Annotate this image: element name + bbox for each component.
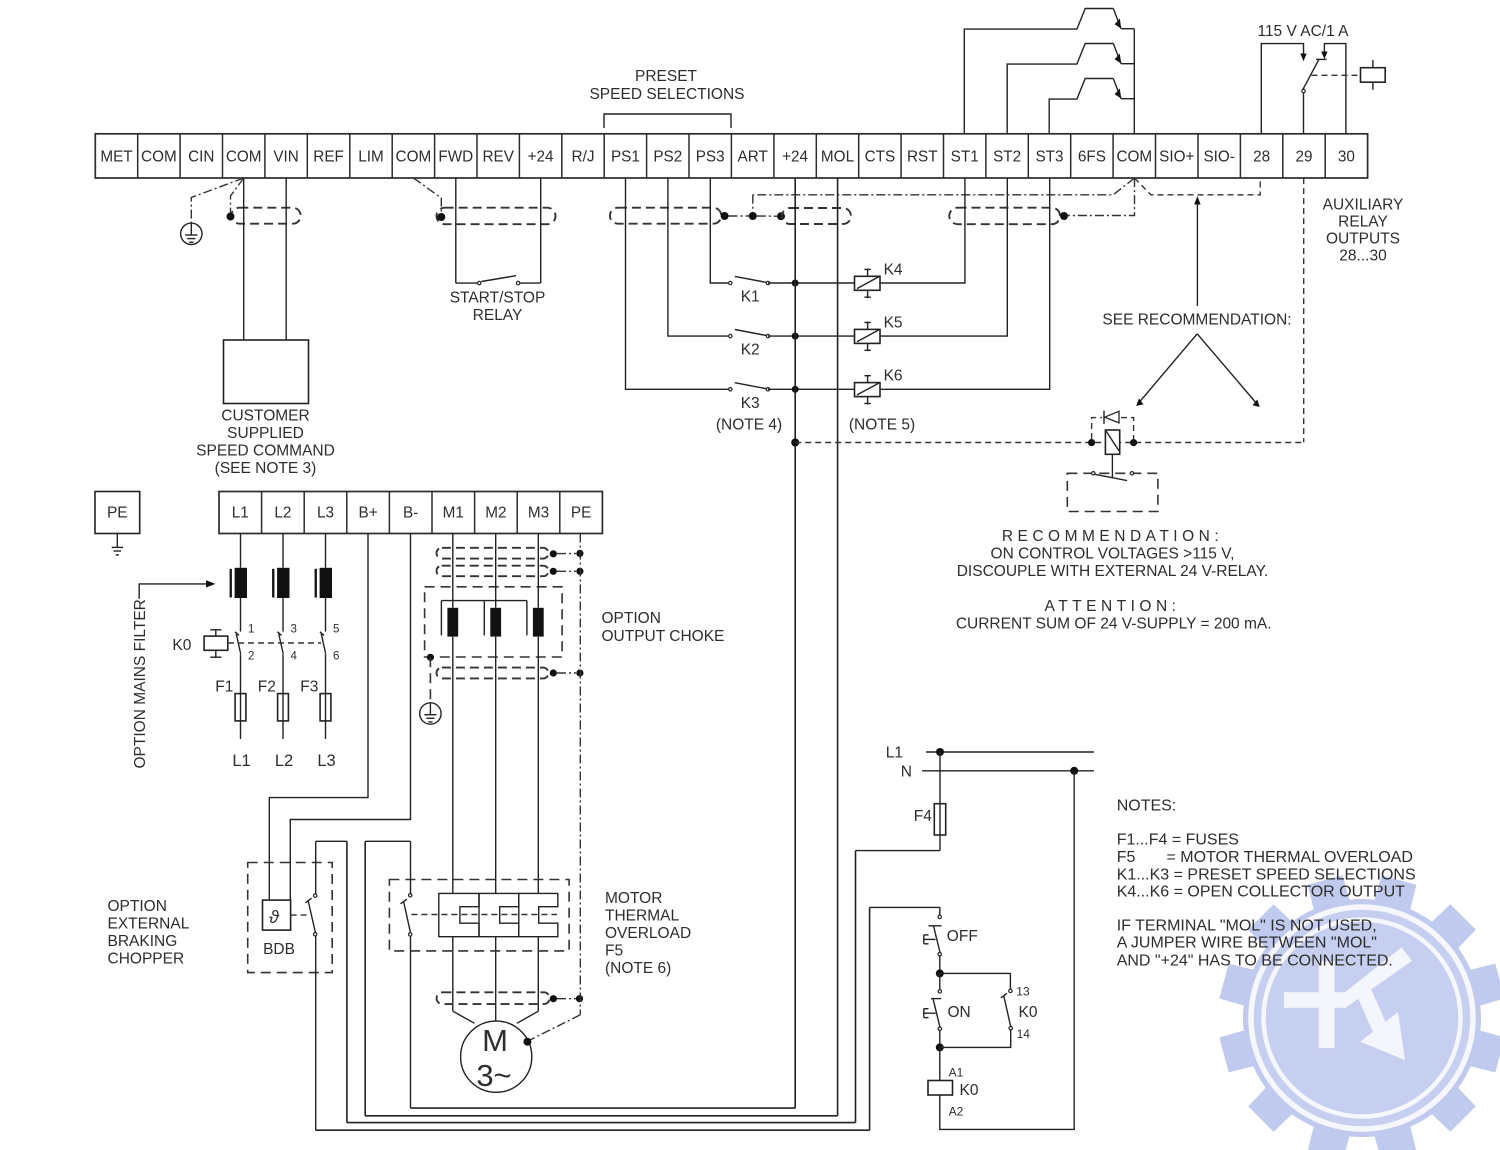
- svg-text:COM: COM: [141, 149, 177, 166]
- svg-text:K6: K6: [884, 368, 903, 385]
- svg-text:ATTENTION:: ATTENTION:: [1045, 598, 1181, 615]
- svg-text:A JUMPER WIRE BETWEEN "MOL": A JUMPER WIRE BETWEEN "MOL": [1117, 935, 1377, 952]
- svg-text:L1: L1: [886, 745, 903, 762]
- svg-text:OVERLOAD: OVERLOAD: [605, 925, 691, 942]
- svg-text:R/J: R/J: [572, 149, 595, 166]
- svg-text:LIM: LIM: [358, 149, 384, 166]
- svg-text:B-: B-: [403, 505, 418, 522]
- svg-text:K4...K6 = OPEN COLLECTOR OUTPU: K4...K6 = OPEN COLLECTOR OUTPUT: [1117, 884, 1405, 901]
- svg-text:K1...K3 = PRESET SPEED SELECTI: K1...K3 = PRESET SPEED SELECTIONS: [1117, 866, 1416, 883]
- svg-text:3: 3: [291, 624, 297, 636]
- svg-text:PS2: PS2: [653, 149, 682, 166]
- svg-text:F5 = MOTOR THERMAL OVERL: F5 = MOTOR THERMAL OVERLOAD: [1117, 849, 1413, 866]
- svg-text:A1: A1: [949, 1066, 964, 1080]
- svg-text:AUXILIARY: AUXILIARY: [1323, 197, 1404, 214]
- svg-text:K4: K4: [884, 261, 903, 278]
- svg-text:115 V AC/1 A: 115 V AC/1 A: [1257, 23, 1349, 40]
- svg-text:OUTPUT CHOKE: OUTPUT CHOKE: [602, 628, 725, 645]
- svg-text:F2: F2: [258, 679, 276, 696]
- svg-text:ST2: ST2: [993, 149, 1021, 166]
- svg-text:3~: 3~: [476, 1058, 511, 1093]
- svg-text:+24: +24: [528, 149, 554, 166]
- svg-text:REF: REF: [313, 149, 344, 166]
- svg-text:L2: L2: [274, 505, 291, 522]
- svg-text:F1: F1: [215, 679, 233, 696]
- svg-text:RST: RST: [907, 149, 938, 166]
- svg-text:L1: L1: [232, 505, 249, 522]
- svg-text:SPEED COMMAND: SPEED COMMAND: [196, 443, 335, 460]
- svg-text:IF TERMINAL "MOL" IS NOT USED,: IF TERMINAL "MOL" IS NOT USED,: [1117, 918, 1377, 935]
- svg-text:COM: COM: [226, 149, 262, 166]
- svg-text:28...30: 28...30: [1339, 248, 1387, 265]
- svg-text:B+: B+: [359, 505, 378, 522]
- svg-text:EXTERNAL: EXTERNAL: [108, 916, 190, 933]
- svg-text:COM: COM: [396, 149, 432, 166]
- svg-text:K1: K1: [741, 289, 760, 306]
- svg-text:K5: K5: [884, 314, 903, 331]
- svg-text:5: 5: [333, 624, 339, 636]
- svg-text:ART: ART: [738, 149, 768, 166]
- svg-text:SEE RECOMMENDATION:: SEE RECOMMENDATION:: [1102, 312, 1291, 329]
- svg-text:PE: PE: [107, 505, 128, 522]
- svg-text:PS1: PS1: [611, 149, 640, 166]
- svg-text:1: 1: [248, 624, 254, 636]
- svg-text:(NOTE 4): (NOTE 4): [716, 417, 782, 434]
- svg-text:CURRENT SUM OF 24 V-SUPPLY = 2: CURRENT SUM OF 24 V-SUPPLY = 200 mA.: [956, 616, 1272, 633]
- svg-text:N: N: [901, 764, 912, 781]
- svg-text:CUSTOMER: CUSTOMER: [221, 408, 309, 425]
- svg-text:(SEE NOTE 3): (SEE NOTE 3): [215, 460, 317, 477]
- svg-text:START/STOP: START/STOP: [450, 290, 546, 307]
- svg-text:A2: A2: [949, 1105, 964, 1119]
- svg-text:MOL: MOL: [821, 149, 854, 166]
- svg-text:MOTOR: MOTOR: [605, 890, 662, 907]
- svg-text:13: 13: [1016, 985, 1030, 999]
- svg-text:CTS: CTS: [865, 149, 896, 166]
- svg-text:ON: ON: [948, 1004, 971, 1021]
- svg-text:29: 29: [1295, 149, 1312, 166]
- svg-text:14: 14: [1017, 1027, 1031, 1041]
- svg-text:6FS: 6FS: [1078, 149, 1106, 166]
- svg-text:(NOTE 6): (NOTE 6): [605, 960, 671, 977]
- svg-text:F3: F3: [300, 679, 318, 696]
- svg-text:ON CONTROL VOLTAGES >115 V,: ON CONTROL VOLTAGES >115 V,: [991, 546, 1235, 563]
- svg-text:BRAKING: BRAKING: [108, 933, 178, 950]
- svg-text:M3: M3: [528, 505, 549, 522]
- svg-text:SUPPLIED: SUPPLIED: [227, 425, 304, 442]
- svg-text:K3: K3: [741, 395, 760, 412]
- svg-text:L3: L3: [317, 752, 335, 770]
- svg-text:28: 28: [1253, 149, 1270, 166]
- svg-text:SIO-: SIO-: [1203, 149, 1234, 166]
- svg-text:SIO+: SIO+: [1159, 149, 1194, 166]
- svg-text:6: 6: [333, 651, 339, 663]
- svg-text:PS3: PS3: [696, 149, 725, 166]
- svg-text:AND "+24" HAS TO BE CONNECTED.: AND "+24" HAS TO BE CONNECTED.: [1117, 953, 1393, 970]
- svg-text:OFF: OFF: [947, 928, 978, 945]
- svg-text:REV: REV: [482, 149, 514, 166]
- svg-text:OUTPUTS: OUTPUTS: [1326, 231, 1400, 248]
- svg-text:OPTION: OPTION: [602, 610, 661, 627]
- svg-text:K0: K0: [172, 637, 191, 654]
- svg-text:L3: L3: [317, 505, 334, 522]
- svg-text:CHOPPER: CHOPPER: [108, 951, 185, 968]
- svg-text:30: 30: [1338, 149, 1355, 166]
- svg-text:OPTION MAINS FILTER: OPTION MAINS FILTER: [132, 599, 149, 768]
- svg-text:DISCOUPLE WITH EXTERNAL 24 V-R: DISCOUPLE WITH EXTERNAL 24 V-RELAY.: [957, 563, 1269, 580]
- svg-text:4: 4: [291, 651, 298, 663]
- svg-text:L2: L2: [275, 752, 293, 770]
- svg-text:PE: PE: [571, 505, 591, 522]
- svg-text:COM: COM: [1116, 149, 1152, 166]
- svg-text:M2: M2: [485, 505, 506, 522]
- svg-text:MET: MET: [100, 149, 132, 166]
- svg-text:OPTION: OPTION: [108, 898, 167, 915]
- svg-text:F5: F5: [605, 943, 623, 960]
- svg-text:K0: K0: [960, 1082, 979, 1099]
- svg-text:ϑ: ϑ: [269, 907, 280, 927]
- svg-text:(NOTE 5): (NOTE 5): [849, 417, 915, 434]
- svg-text:L1: L1: [232, 752, 250, 770]
- svg-text:VIN: VIN: [273, 149, 299, 166]
- svg-text:RECOMMENDATION:: RECOMMENDATION:: [1002, 528, 1223, 545]
- svg-text:2: 2: [248, 651, 254, 663]
- svg-text:THERMAL: THERMAL: [605, 908, 679, 925]
- svg-text:SPEED SELECTIONS: SPEED SELECTIONS: [589, 86, 744, 103]
- svg-text:+24: +24: [782, 149, 808, 166]
- svg-text:FWD: FWD: [438, 149, 473, 166]
- svg-text:F4: F4: [914, 808, 932, 825]
- svg-text:BDB: BDB: [263, 941, 295, 958]
- svg-text:M1: M1: [443, 505, 464, 522]
- svg-text:M: M: [482, 1023, 508, 1058]
- svg-text:ST3: ST3: [1035, 149, 1063, 166]
- svg-text:NOTES:: NOTES:: [1117, 798, 1177, 815]
- svg-text:CIN: CIN: [188, 149, 214, 166]
- svg-text:RELAY: RELAY: [1338, 214, 1388, 231]
- svg-text:F1...F4 = FUSES: F1...F4 = FUSES: [1117, 832, 1239, 849]
- svg-text:K2: K2: [741, 342, 760, 359]
- svg-text:RELAY: RELAY: [473, 307, 523, 324]
- svg-text:K0: K0: [1019, 1004, 1038, 1021]
- svg-text:ST1: ST1: [951, 149, 979, 166]
- svg-text:PRESET: PRESET: [635, 68, 698, 85]
